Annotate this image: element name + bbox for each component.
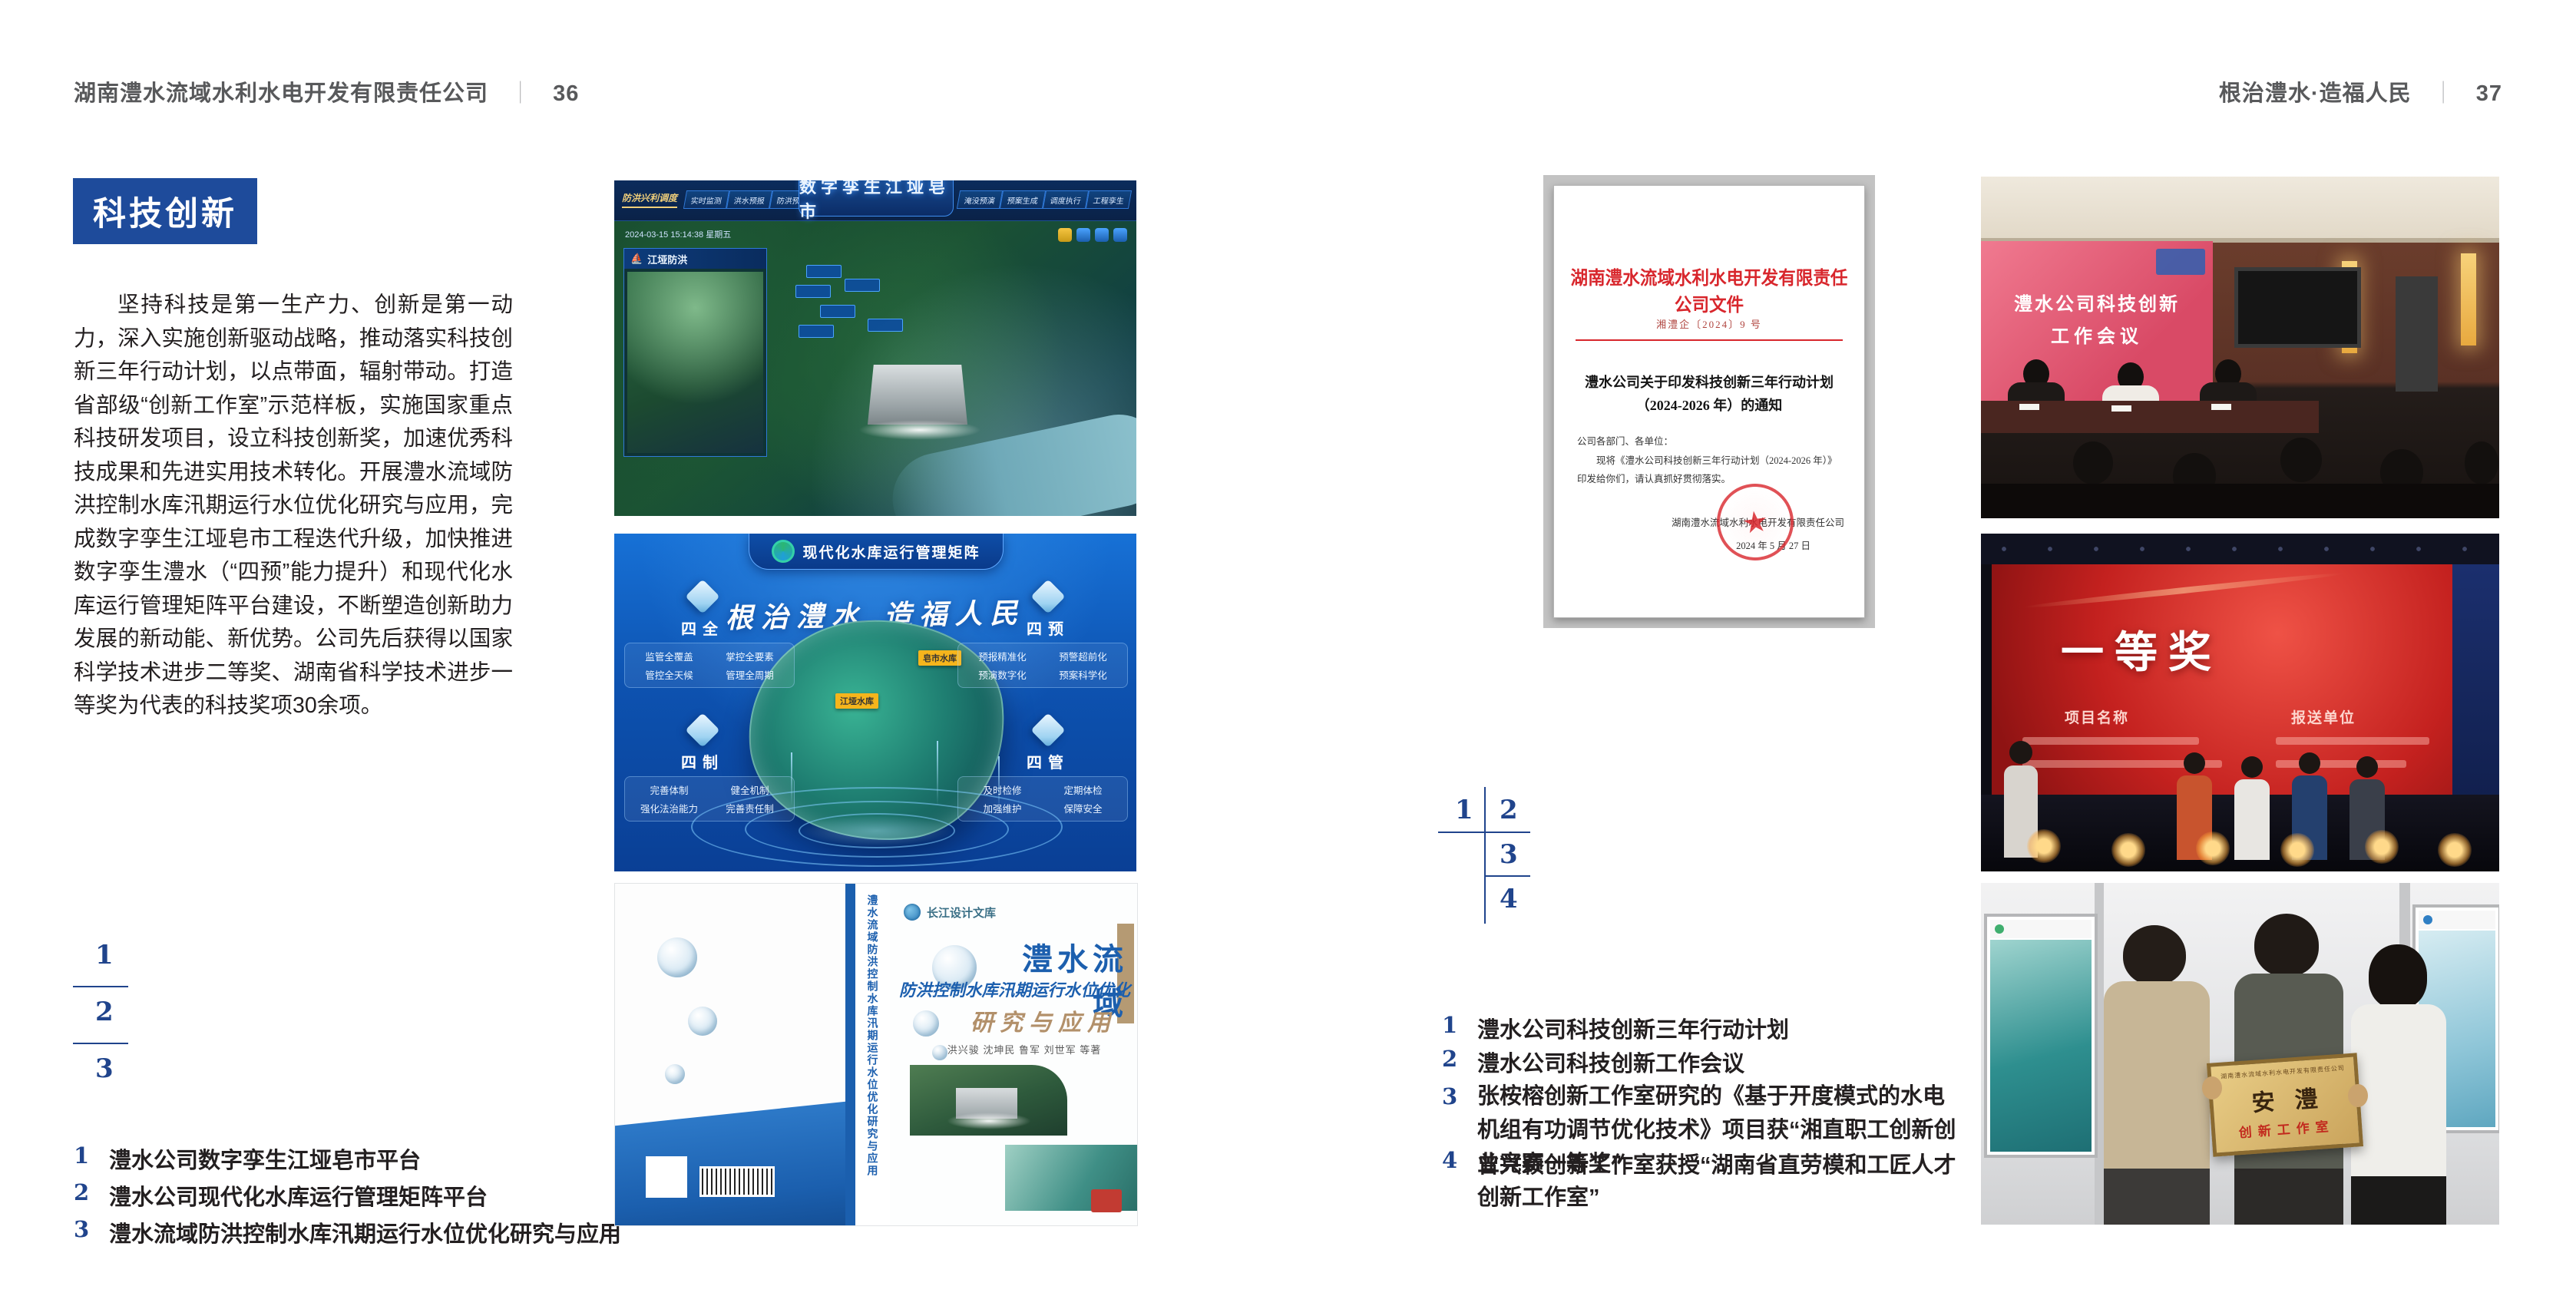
header-right: 根治澧水·造福人民 ｜ 37 xyxy=(2219,75,2502,107)
caption-number: 3 xyxy=(74,1216,92,1248)
dashboard-tab: 淹没预演 xyxy=(957,190,1003,209)
caption-row: 1 澧水公司科技创新三年行动计划 xyxy=(1442,1012,1949,1044)
figure-index-3: 3 xyxy=(1500,839,1518,870)
figure-index-1: 1 xyxy=(95,940,114,970)
stage-light xyxy=(2438,833,2472,867)
side-panel-title: 江垭防洪 xyxy=(647,252,687,266)
document-title-line1: 澧水公司关于印发科技创新三年行动计划 xyxy=(1554,372,1864,392)
node-item: 预报精准化 xyxy=(964,649,1040,663)
hand xyxy=(2348,1084,2368,1107)
node-item: 预警超前化 xyxy=(1045,649,1121,663)
book-spine: 澧水流域防洪控制水库汛期运行水位优化研究与应用 xyxy=(855,884,891,1225)
section-paragraph: 坚持科技是第一生产力、创新是第一动力，深入实施创新驱动战略，推动落实科技创新三年… xyxy=(74,289,513,723)
document-number: 湘澧企〔2024〕9 号 xyxy=(1554,316,1864,331)
barcode xyxy=(699,1166,775,1197)
book-title-line3: 研究与应用 xyxy=(959,1003,1128,1037)
dashboard-group-label: 防洪兴利调度 xyxy=(622,191,677,208)
light-pillar xyxy=(998,756,1000,810)
locate-icon xyxy=(1095,228,1109,242)
node-card: 监管全覆盖 掌控全要素 管控全天候 管理全周期 xyxy=(624,643,795,688)
light-pillar xyxy=(937,741,938,806)
person-head xyxy=(2369,944,2427,1009)
node-item: 掌控全要素 xyxy=(712,649,788,663)
digital-twin-dashboard-image: 防洪兴利调度 实时监测 洪水预报 防洪预警 数字孪生江垭皂市 淹没预演 预案生成… xyxy=(614,180,1136,516)
figure-index-divider xyxy=(73,986,128,987)
publisher-mark xyxy=(1091,1189,1122,1212)
dashboard-tab: 工程孪生 xyxy=(1086,190,1132,209)
plaque-name: 安澧 xyxy=(2212,1077,2357,1121)
node-item: 完善体制 xyxy=(631,782,707,797)
award-column-header: 项目名称 xyxy=(2065,706,2129,727)
map-tag: 江垭水库 xyxy=(835,693,878,709)
award-title: 一等奖 xyxy=(2061,618,2222,680)
poster-image xyxy=(1990,940,2092,1152)
header-left-page-number: 36 xyxy=(553,81,579,106)
dam-structure xyxy=(868,365,967,425)
dashboard-side-panel: ⛵ 江垭防洪 xyxy=(623,248,767,457)
figure-index-divider xyxy=(1484,875,1530,877)
series-name: 长江设计文库 xyxy=(927,904,996,921)
figure-index-divider xyxy=(73,1043,128,1044)
dashboard-timestamp: 2024-03-15 15:14:38 星期五 xyxy=(625,228,731,240)
node-name: 四全 xyxy=(626,617,779,639)
caption-row: 4 曾兴颖创新工作室获授“湖南省直劳模和工匠人才创新工作室” xyxy=(1442,1147,1964,1212)
poster-board xyxy=(1984,914,2098,1158)
node-item: 保障安全 xyxy=(1045,801,1121,815)
official-document-image: 湖南澧水流域水利水电开发有限责任公司文件 湘澧企〔2024〕9 号 澧水公司关于… xyxy=(1543,175,1875,628)
dam-spillway-foam xyxy=(947,1113,1031,1129)
award-column-header: 报送单位 xyxy=(2291,706,2356,727)
figure-index-3: 3 xyxy=(95,1053,114,1084)
reservoir-matrix-image: 现代化水库运行管理矩阵 根治澧水 造福人民 江垭水库 皂市水库 四全 监管全覆盖… xyxy=(614,534,1136,871)
official-seal-icon: ★ xyxy=(1712,479,1799,566)
water-drop-graphic xyxy=(688,1007,717,1036)
qr-code xyxy=(646,1156,687,1198)
book-authors: 洪兴骏 沈坤民 鲁军 刘世军 等著 xyxy=(921,1042,1128,1056)
node-name: 四制 xyxy=(626,750,779,772)
figure-index-grid: 1 2 3 4 xyxy=(1438,787,1538,933)
node-item: 管控全天候 xyxy=(631,667,707,682)
header-left: 湖南澧水流域水利水电开发有限责任公司 ｜ 36 xyxy=(74,75,579,107)
screen-text-line xyxy=(2276,737,2429,745)
caption-number: 2 xyxy=(74,1179,92,1212)
dam-spillway-foam xyxy=(858,420,981,440)
book-spine-title: 澧水流域防洪控制水库汛期运行水位优化研究与应用 xyxy=(865,894,881,1217)
layers-icon xyxy=(1076,228,1090,242)
water-drop-graphic xyxy=(657,937,697,977)
dam-photo xyxy=(910,1065,1067,1136)
caption-row: 1 澧水公司数字孪生江垭皂市平台 xyxy=(74,1142,421,1175)
matrix-title: 现代化水库运行管理矩阵 xyxy=(802,541,980,562)
stage-light xyxy=(2111,833,2145,867)
node-item: 管理全周期 xyxy=(712,667,788,682)
audience-silhouette xyxy=(2280,438,2322,482)
door xyxy=(2396,276,2438,392)
tv-screen xyxy=(2234,267,2361,348)
caption-text: 澧水流域防洪控制水库汛期运行水位优化研究与应用 xyxy=(109,1216,621,1248)
person-body xyxy=(2104,981,2210,1173)
document-salutation: 公司各部门、各单位： xyxy=(1577,433,1673,448)
globe-icon xyxy=(904,904,921,921)
document-red-header: 湖南澧水流域水利水电开发有限责任公司文件 xyxy=(1563,263,1855,316)
node-item: 监管全覆盖 xyxy=(631,649,707,663)
caption-row: 3 澧水流域防洪控制水库汛期运行水位优化研究与应用 xyxy=(74,1216,621,1248)
brochure-spread: 湖南澧水流域水利水电开发有限责任公司 ｜ 36 根治澧水·造福人民 ｜ 37 科… xyxy=(0,0,2576,1306)
awardee-silhouette xyxy=(2234,756,2270,860)
dashboard-tab: 洪水预报 xyxy=(726,190,772,209)
water-drop-graphic xyxy=(913,1010,939,1037)
section-badge: 科技创新 xyxy=(73,178,257,244)
audience-silhouette xyxy=(2465,441,2498,484)
map-tag: 皂市水库 xyxy=(918,650,961,666)
poster-logo-icon xyxy=(2423,915,2432,924)
matrix-title-plate: 现代化水库运行管理矩阵 xyxy=(749,534,1004,570)
caption-text: 澧水公司科技创新工作会议 xyxy=(1477,1046,1744,1078)
caption-row: 2 澧水公司科技创新工作会议 xyxy=(1442,1046,1949,1078)
user-icon xyxy=(1058,228,1072,242)
caption-number: 1 xyxy=(1442,1012,1460,1044)
star-icon: ★ xyxy=(1740,503,1771,541)
header-left-separator: ｜ xyxy=(509,81,532,106)
book-title-line2: 防洪控制水库汛期运行水位优化 xyxy=(898,977,1132,1001)
screen-text-line xyxy=(2022,737,2199,745)
figure-index-4: 4 xyxy=(1500,884,1518,914)
data-tag xyxy=(820,305,855,318)
data-tag xyxy=(806,265,842,278)
person-head xyxy=(2254,914,2319,977)
book-front-cover: 长江设计文库 澧水流域 防洪控制水库汛期运行水位优化 研究与应用 洪兴骏 沈坤民… xyxy=(890,884,1137,1225)
screen-logo xyxy=(2156,249,2205,275)
table-paper xyxy=(2111,405,2131,412)
header-right-page-number: 37 xyxy=(2476,81,2502,106)
book-cover-image: 澧水流域防洪控制水库汛期运行水位优化研究与应用 长江设计文库 澧水流域 防洪控制… xyxy=(614,883,1138,1226)
flag-icon: ⛵ xyxy=(630,253,643,265)
figure-index-1: 1 xyxy=(1455,795,1473,825)
screen-title-line1: 澧水公司科技创新 xyxy=(1981,289,2213,316)
header-right-motto: 根治澧水·造福人民 xyxy=(2219,81,2412,106)
stage-light xyxy=(2027,829,2061,863)
caption-row: 2 澧水公司现代化水库运行管理矩阵平台 xyxy=(74,1179,488,1212)
wall-lamp xyxy=(2461,253,2476,346)
node-name: 四管 xyxy=(971,750,1125,772)
award-ceremony-photo: 一等奖 项目名称 报送单位 xyxy=(1981,534,2499,871)
header-left-company: 湖南澧水流域水利水电开发有限责任公司 xyxy=(74,81,488,106)
data-tag xyxy=(795,285,831,298)
node-item: 预演数字化 xyxy=(964,667,1040,682)
poster-logo-icon xyxy=(1995,924,2004,934)
book-spine-edge xyxy=(845,884,855,1225)
water-drop-graphic xyxy=(665,1064,685,1084)
caption-text: 澧水公司数字孪生江垭皂市平台 xyxy=(109,1142,421,1175)
node-icon xyxy=(1030,713,1065,747)
hologram-core xyxy=(799,813,955,848)
data-tag xyxy=(799,325,834,338)
node-card: 预报精准化 预警超前化 预演数字化 预案科学化 xyxy=(957,643,1128,688)
data-tag xyxy=(845,279,880,292)
screen-flare xyxy=(2023,570,2345,610)
header-right-separator: ｜ xyxy=(2432,81,2455,106)
table-paper xyxy=(2211,404,2231,410)
screen-title-line2: 工作会议 xyxy=(1981,321,2213,348)
node-item: 预案科学化 xyxy=(1045,667,1121,682)
dashboard-title: 数字孪生江垭皂市 xyxy=(799,180,953,223)
stage-light xyxy=(2365,830,2399,864)
alert-icon xyxy=(1113,228,1127,242)
light-pillar xyxy=(791,752,792,806)
document-body: 现将《澧水公司科技创新三年行动计划（2024-2026 年）》印发给你们，请认真… xyxy=(1577,451,1841,488)
caption-text: 澧水公司现代化水库运行管理矩阵平台 xyxy=(109,1179,488,1212)
audience-silhouette xyxy=(2073,441,2113,484)
figure-index-2: 2 xyxy=(95,997,114,1027)
node-item: 定期体检 xyxy=(1045,782,1121,797)
plaque-presentation-photo: 湖南澧水流域水利水电开发有限责任公司 安澧 创新工作室 xyxy=(1981,883,2499,1225)
caption-number: 1 xyxy=(74,1142,92,1175)
node-name: 四预 xyxy=(971,617,1125,639)
caption-text: 曾兴颖创新工作室获授“湖南省直劳模和工匠人才创新工作室” xyxy=(1477,1147,1964,1212)
stage-truss xyxy=(1981,534,2499,564)
person-head xyxy=(2123,925,2186,985)
caption-number: 4 xyxy=(1442,1147,1460,1212)
table-paper xyxy=(2019,404,2039,410)
innovation-studio-plaque: 湖南澧水流域水利水电开发有限责任公司 安澧 创新工作室 xyxy=(2207,1053,2363,1156)
dashboard-title-plate: 数字孪生江垭皂市 xyxy=(799,180,954,217)
figure-index-2: 2 xyxy=(1500,795,1518,825)
data-tag xyxy=(868,319,903,332)
caption-number: 2 xyxy=(1442,1046,1460,1078)
figure-index-divider xyxy=(1484,787,1486,924)
dashboard-tab: 预案生成 xyxy=(1000,190,1046,209)
document-page: 湖南澧水流域水利水电开发有限责任公司文件 湘澧企〔2024〕9 号 澧水公司关于… xyxy=(1553,185,1865,618)
dashboard-tab: 实时监测 xyxy=(683,190,729,209)
book-back-cover xyxy=(615,884,845,1225)
node-icon xyxy=(685,713,719,747)
stage-light xyxy=(2196,832,2230,865)
hand xyxy=(2202,1076,2222,1099)
audience-row xyxy=(1981,484,2499,518)
node-item: 强化法治能力 xyxy=(631,801,707,815)
series-logo: 长江设计文库 xyxy=(904,904,996,921)
person-legs xyxy=(2104,1169,2210,1225)
dashboard-tab: 调度执行 xyxy=(1043,190,1089,209)
stage-light xyxy=(2280,833,2314,867)
meeting-photo: 澧水公司科技创新 工作会议 xyxy=(1981,177,2499,518)
document-red-rule xyxy=(1576,339,1843,341)
figure-index-divider xyxy=(1438,832,1530,833)
meeting-screen: 澧水公司科技创新 工作会议 xyxy=(1981,241,2213,402)
person-legs xyxy=(2351,1176,2446,1225)
side-panel-photo xyxy=(627,272,763,453)
caption-text: 澧水公司科技创新三年行动计划 xyxy=(1477,1012,1789,1044)
person-legs xyxy=(2234,1169,2343,1225)
document-title-line2: （2024-2026 年）的通知 xyxy=(1554,395,1864,415)
lhpc-logo-icon xyxy=(772,540,795,563)
